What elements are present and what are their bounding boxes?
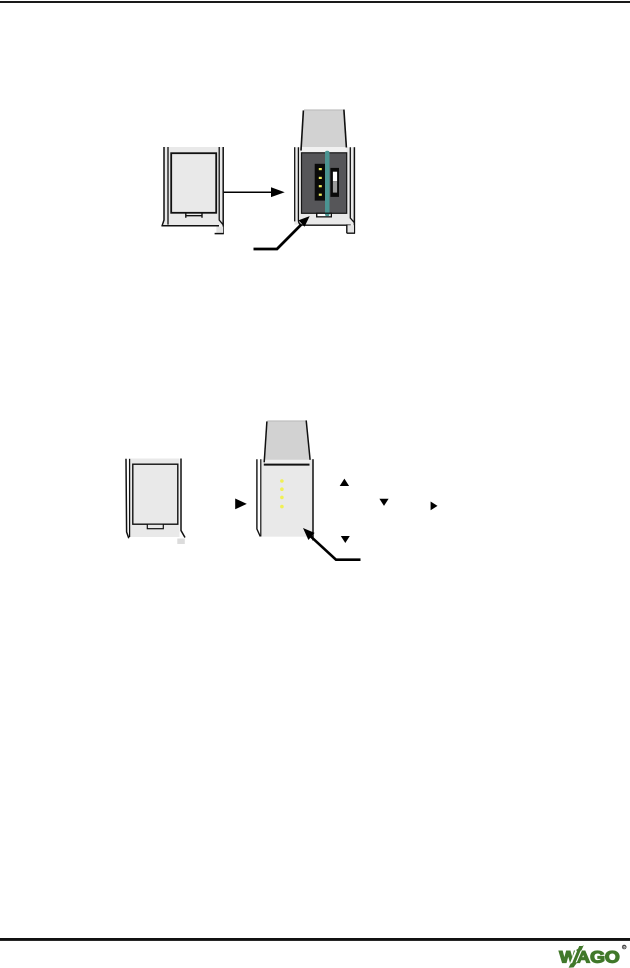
svg-text:WAGO: WAGO xyxy=(559,949,620,967)
